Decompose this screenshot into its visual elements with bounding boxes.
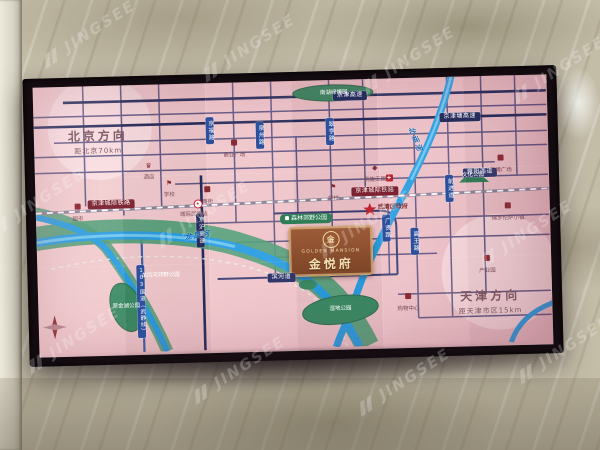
park-label-forest: 森林郊野公园 [280,213,332,224]
park-label-wetland: 湿地公园 [318,305,362,312]
poi-shopping: 购物中心 [386,283,431,312]
flag-icon: ⚑ [330,183,336,191]
building-icon [405,293,411,299]
park-pill-icon [285,216,289,220]
crown-icon: ♛ [145,162,151,170]
building-icon [497,154,503,160]
building-icon [75,204,81,210]
road-label-cuiheng: 翠亨路 [325,118,334,145]
poi-market: 超市 [55,194,100,223]
road-label-gaowang: 高王路 [410,228,419,255]
project-name-cn: 金悦府 [290,254,372,273]
flag-icon: ⚑ [166,179,172,187]
building-icon [231,139,237,145]
direction-beijing: 北京方向 距北京70km [48,129,149,156]
photo-of-led-screen: 北京方向 距北京70km 天津方向 距天津市区15km 金 GOLDEN MAN… [0,0,600,450]
direction-tianjin-title: 天津方向 [434,288,546,305]
road-label-quanzhou: 泉州路 [256,122,265,149]
poi-school-2: ⚑学校 [311,173,356,202]
road-label-binhe: 滨河道 [268,273,296,283]
poi-florentia: 佛罗伦萨小镇 [485,193,530,222]
watermark-logo-icon [40,47,62,68]
direction-tianjin: 天津方向 距天津市区15km [434,288,547,316]
road-label-jingjintang-expwy: 京津塘高速 [439,112,480,122]
watermark: JINGSEE [39,0,139,70]
poi-mall: 商业广场 [212,130,257,159]
building-icon [505,202,511,208]
poi-wanbo: 万博广场 [478,145,523,174]
hospital-cross-icon: + [385,174,392,181]
direction-beijing-title: 北京方向 [48,129,148,145]
building-icon [204,186,210,192]
